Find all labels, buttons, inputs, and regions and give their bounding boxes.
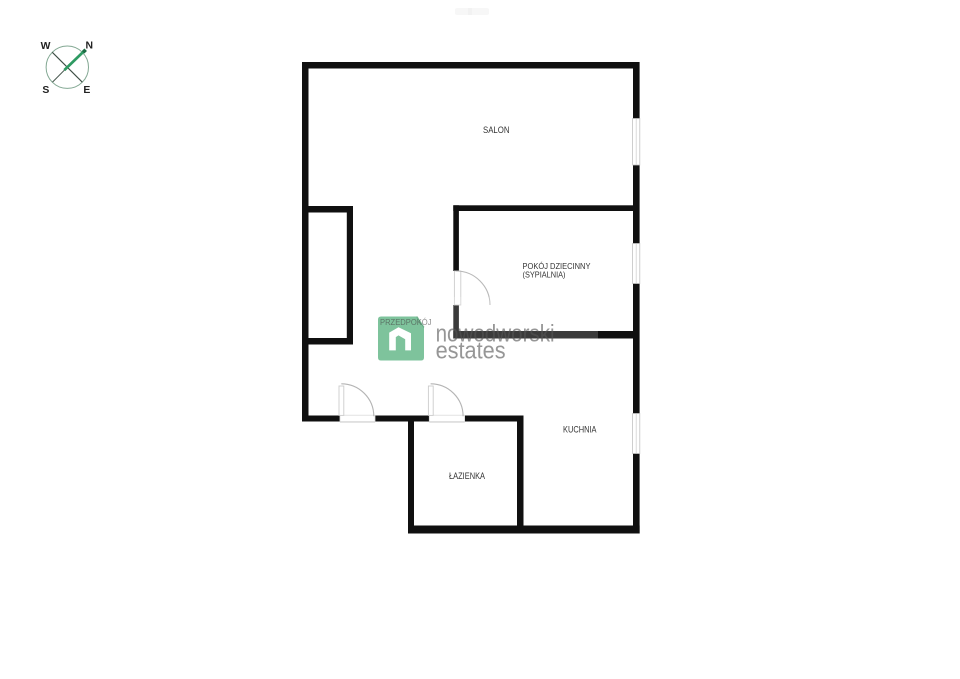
svg-text:PRZEDPOKÓJ: PRZEDPOKÓJ — [380, 318, 432, 327]
svg-text:KUCHNIA: KUCHNIA — [563, 424, 597, 435]
svg-text:(SYPIALNIA): (SYPIALNIA) — [523, 270, 566, 280]
svg-text:N: N — [85, 41, 93, 52]
svg-text:SALON: SALON — [483, 124, 510, 135]
svg-text:E: E — [83, 85, 90, 96]
svg-text:S: S — [42, 85, 49, 96]
svg-text:W: W — [41, 41, 51, 52]
svg-text:estates: estates — [436, 337, 506, 364]
svg-text:ŁAZIENKA: ŁAZIENKA — [449, 470, 486, 481]
